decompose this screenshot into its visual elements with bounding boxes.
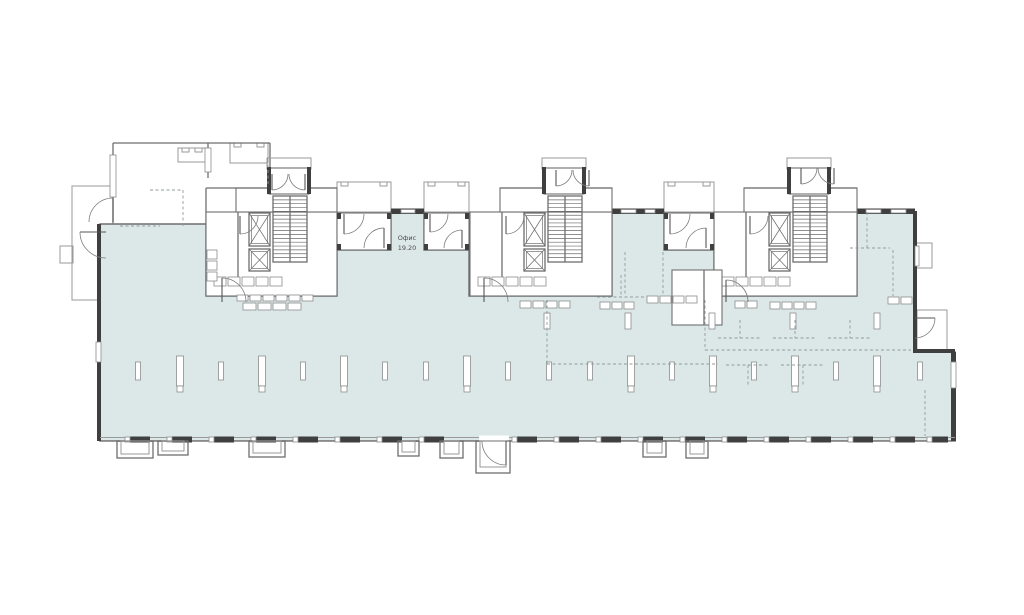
column-base xyxy=(341,386,347,392)
window xyxy=(866,210,881,214)
window-frame xyxy=(764,437,769,442)
slab-box xyxy=(770,302,780,309)
column-base xyxy=(259,386,265,392)
entrance-lobby xyxy=(789,168,829,194)
vestibule-jamb xyxy=(664,244,668,250)
window xyxy=(96,342,101,362)
slab-box xyxy=(520,301,531,308)
column-base xyxy=(874,386,880,392)
slab-box xyxy=(612,302,622,309)
wall-pier xyxy=(769,437,789,443)
window-frame xyxy=(848,437,853,442)
column xyxy=(874,313,880,329)
column xyxy=(544,313,550,329)
window-well-inner xyxy=(690,441,704,454)
mailbox xyxy=(270,277,282,286)
mailbox xyxy=(520,277,532,286)
mailbox xyxy=(256,277,268,286)
exterior-wall xyxy=(913,349,955,353)
window-frame xyxy=(293,437,298,442)
office-label-name: Офис xyxy=(398,234,417,242)
column xyxy=(424,362,429,380)
vestibule-jamb xyxy=(710,244,714,250)
column xyxy=(547,362,552,380)
vestibule-jamb xyxy=(465,244,469,250)
slab-box xyxy=(686,296,697,303)
column xyxy=(792,356,799,386)
column-base xyxy=(792,386,798,392)
core-entrance-canopy xyxy=(267,158,311,169)
column xyxy=(628,356,635,386)
fixture xyxy=(207,272,217,281)
wall-pier xyxy=(601,437,621,443)
column xyxy=(625,313,631,329)
mailbox xyxy=(778,277,790,286)
window-frame xyxy=(680,437,685,442)
lobby-jamb xyxy=(787,167,791,194)
canopy-tick xyxy=(668,182,675,186)
column xyxy=(588,362,593,380)
slab-box xyxy=(673,296,684,303)
window-frame xyxy=(927,437,932,442)
door-swing-arc xyxy=(89,198,113,222)
slab-box xyxy=(250,295,261,301)
slab-box xyxy=(237,295,248,301)
mailbox xyxy=(722,277,734,286)
window-well xyxy=(686,441,708,458)
slab-box xyxy=(546,301,557,308)
canopy-tick xyxy=(428,182,435,186)
wall-pier xyxy=(214,437,234,443)
wall-pier xyxy=(932,437,948,443)
column xyxy=(301,362,306,380)
vestibule-jamb xyxy=(710,213,714,219)
column xyxy=(259,356,266,386)
vestibule-jamb xyxy=(424,244,428,250)
lobby-jamb xyxy=(542,167,546,194)
window-well-inner xyxy=(121,441,149,454)
window-frame xyxy=(806,437,811,442)
window xyxy=(110,155,116,197)
column xyxy=(177,356,184,386)
entry-porch-inner xyxy=(480,441,506,467)
lobby-jamb xyxy=(582,167,586,194)
vestibule-jamb xyxy=(387,244,391,250)
window-well-inner xyxy=(444,441,459,454)
column xyxy=(709,313,715,329)
slab-box xyxy=(288,303,301,310)
window xyxy=(621,210,636,214)
window-well xyxy=(249,441,285,457)
window xyxy=(205,148,211,172)
column xyxy=(874,356,881,386)
window-well xyxy=(643,441,666,457)
fixture xyxy=(207,250,217,259)
column-base xyxy=(464,386,470,392)
lobby-jamb xyxy=(827,167,831,194)
door-swing-arc xyxy=(482,441,506,465)
vestibule-jamb xyxy=(465,213,469,219)
canopy-tick xyxy=(380,182,387,186)
column-base xyxy=(628,386,634,392)
vestibule-jamb xyxy=(337,244,341,250)
canopy-tick xyxy=(182,148,189,152)
slab-box xyxy=(276,295,287,301)
slab-box xyxy=(273,303,286,310)
slab-box xyxy=(302,295,313,301)
column xyxy=(506,362,511,380)
slab-box xyxy=(794,302,804,309)
wall-pier xyxy=(811,437,831,443)
column xyxy=(219,362,224,380)
entry-porch xyxy=(476,441,510,473)
entry-door-gap xyxy=(479,436,509,444)
window-well xyxy=(117,441,153,458)
window-well xyxy=(398,441,419,456)
window-well-inner xyxy=(647,441,662,453)
floor-plan-canvas: Офис 19.20 xyxy=(0,0,1024,615)
exterior-porch-outline xyxy=(60,246,73,263)
window-frame xyxy=(377,437,382,442)
column xyxy=(464,356,471,386)
column xyxy=(710,356,717,386)
slab-box xyxy=(806,302,816,309)
window-frame xyxy=(638,437,643,442)
window xyxy=(951,362,956,388)
window-frame xyxy=(596,437,601,442)
column xyxy=(670,362,675,380)
lobby-jamb xyxy=(307,167,311,194)
wall-pier xyxy=(853,437,873,443)
window xyxy=(645,210,655,214)
mailbox xyxy=(492,277,504,286)
slab-box xyxy=(533,301,544,308)
canopy-tick xyxy=(703,182,710,186)
slab-box xyxy=(660,296,671,303)
column xyxy=(341,356,348,386)
entrance-canopy xyxy=(230,143,268,163)
window-well xyxy=(440,441,463,458)
column-base xyxy=(710,386,716,392)
slab-box xyxy=(782,302,792,309)
slab-box xyxy=(289,295,300,301)
slab-box xyxy=(624,302,634,309)
door-swing-arc xyxy=(915,318,935,338)
floor-plan-drawing: Офис 19.20 xyxy=(0,0,1024,615)
column xyxy=(136,362,141,380)
mailbox xyxy=(764,277,776,286)
canopy-tick xyxy=(195,148,202,152)
window-frame xyxy=(512,437,517,442)
window xyxy=(891,210,906,214)
core-entrance-canopy xyxy=(542,158,586,169)
slab-box xyxy=(263,295,274,301)
window-frame xyxy=(890,437,895,442)
vestibule-jamb xyxy=(387,213,391,219)
canopy-tick xyxy=(341,182,348,186)
window-well-inner xyxy=(402,441,415,452)
wall-pier xyxy=(298,437,318,443)
office-label-area: 19.20 xyxy=(398,244,417,252)
wall-pier xyxy=(517,437,537,443)
vestibule-jamb xyxy=(337,213,341,219)
slab-box xyxy=(747,301,757,308)
column xyxy=(383,362,388,380)
canopy-tick xyxy=(458,182,465,186)
column xyxy=(918,362,923,380)
slab-box xyxy=(243,303,256,310)
vestibule-jamb xyxy=(664,213,668,219)
window-frame xyxy=(209,437,214,442)
window xyxy=(401,210,415,214)
slab-box xyxy=(600,302,610,309)
window-frame xyxy=(554,437,559,442)
mailbox xyxy=(242,277,254,286)
wall-pier xyxy=(727,437,747,443)
top-wall-segment xyxy=(612,209,664,215)
mailbox xyxy=(750,277,762,286)
slab-box xyxy=(258,303,271,310)
vestibule-jamb xyxy=(424,213,428,219)
wall-pier xyxy=(895,437,915,443)
exterior-porch-outline xyxy=(917,310,947,352)
fixture xyxy=(207,261,217,270)
wall-pier xyxy=(340,437,360,443)
entrance-lobby xyxy=(544,168,584,194)
mailbox xyxy=(506,277,518,286)
column xyxy=(834,362,839,380)
slab-box xyxy=(901,297,912,304)
window-frame xyxy=(419,437,424,442)
slab-box xyxy=(888,297,899,304)
slab-box xyxy=(735,301,745,308)
exterior-wall xyxy=(913,211,917,352)
slab-box xyxy=(559,301,570,308)
window-well-inner xyxy=(253,441,281,453)
mailbox xyxy=(534,277,546,286)
core-entrance-canopy xyxy=(787,158,831,169)
column-base xyxy=(177,386,183,392)
wall-pier xyxy=(559,437,579,443)
window-frame xyxy=(722,437,727,442)
mailbox xyxy=(736,277,748,286)
slab-box xyxy=(647,296,658,303)
window xyxy=(915,246,919,266)
window-frame xyxy=(335,437,340,442)
